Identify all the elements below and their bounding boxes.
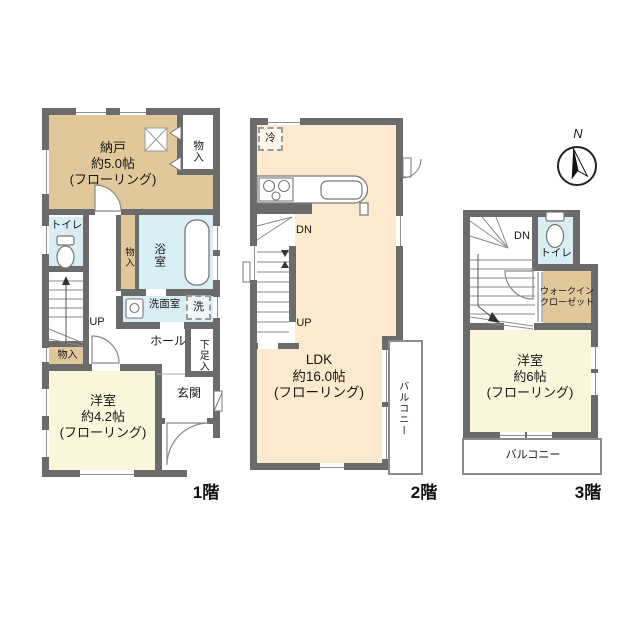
dn-label-3f: DN xyxy=(509,231,535,243)
ldk-label: LDK 約16.0帖 (フローリング) xyxy=(246,350,392,404)
front-door-icon xyxy=(214,391,222,411)
up-label-2f: UP xyxy=(292,318,316,330)
door-swing-western-1f xyxy=(92,336,119,363)
floor2-label: 2階 xyxy=(404,483,444,503)
door-2f-right xyxy=(403,158,421,178)
toilet-3f-label: トイレ xyxy=(539,248,573,260)
floorplan-canvas: 洗 冷 納戸 約5.0帖 (フローリング) 物入 トイレ 物入 浴室 洗面室 U… xyxy=(0,0,640,640)
nando-label: 納戸 約5.0帖 (フローリング) xyxy=(54,139,172,189)
balcony-2f-label: バルコニー xyxy=(395,378,408,438)
stove-icon xyxy=(259,178,293,201)
up-label-1f: UP xyxy=(86,317,108,329)
closet-bottom-label: 物入 xyxy=(52,350,83,362)
nando-note: (フローリング) xyxy=(70,172,157,188)
fridge-box: 冷 xyxy=(258,127,283,151)
ldk-name: LDK xyxy=(306,352,332,369)
washer-box: 洗 xyxy=(186,295,211,320)
toilet-icon-1f xyxy=(57,236,74,268)
door-2f-left xyxy=(243,262,250,282)
western-1f-label: 洋室 約4.2帖 (フローリング) xyxy=(44,392,162,442)
sink-icon xyxy=(321,181,362,199)
western-3f-note: (フローリング) xyxy=(487,385,574,401)
door-swing-entrance xyxy=(167,423,209,465)
floor3-label: 3階 xyxy=(568,483,608,503)
wic-line2: クローゼット xyxy=(540,297,594,308)
stairs-2f xyxy=(257,217,292,332)
toilet-1f-label: トイレ xyxy=(51,220,82,232)
washroom-label: 洗面室 xyxy=(143,299,186,311)
ldk-note: (フローリング) xyxy=(274,385,364,402)
nando-name: 納戸 xyxy=(100,140,126,156)
ldk-size: 約16.0帖 xyxy=(292,369,345,386)
stairs-1f xyxy=(49,281,83,346)
western-3f-label: 洋室 約6帖 (フローリング) xyxy=(466,351,594,403)
floor1-label: 1階 xyxy=(186,483,226,503)
western-1f-note: (フローリング) xyxy=(60,425,147,441)
bathtub-icon xyxy=(185,220,209,285)
western-3f-size: 約6帖 xyxy=(513,369,546,385)
western-3f-name: 洋室 xyxy=(517,353,543,369)
wic-line1: ウォークイン xyxy=(540,286,594,297)
nando-size: 約5.0帖 xyxy=(91,156,135,172)
entrance-label: 玄関 xyxy=(174,387,204,400)
closet-strip-label: 物入 xyxy=(122,240,134,274)
hall-label: ホール xyxy=(145,335,191,348)
western-1f-name: 洋室 xyxy=(90,393,116,409)
compass-icon xyxy=(558,147,596,185)
balcony-3f-label: バルコニー xyxy=(504,449,562,462)
compass-n-label: N xyxy=(567,126,589,142)
dn-label-2f: DN xyxy=(291,225,317,237)
shoe-box-label: 下足入 xyxy=(195,333,209,377)
washbasin-icon xyxy=(126,299,143,318)
western-1f-size: 約4.2帖 xyxy=(81,409,125,425)
stairs-down-marker-2f xyxy=(281,250,289,257)
closet-top-label: 物入 xyxy=(189,130,206,172)
washer-label: 洗 xyxy=(193,301,204,315)
wic-label: ウォークイン クローゼット xyxy=(544,286,590,308)
toilet-icon-3f xyxy=(546,212,564,248)
door-swing-western-3f xyxy=(505,271,533,299)
fridge-label: 冷 xyxy=(265,132,276,145)
bath-label: 浴室 xyxy=(152,237,166,273)
